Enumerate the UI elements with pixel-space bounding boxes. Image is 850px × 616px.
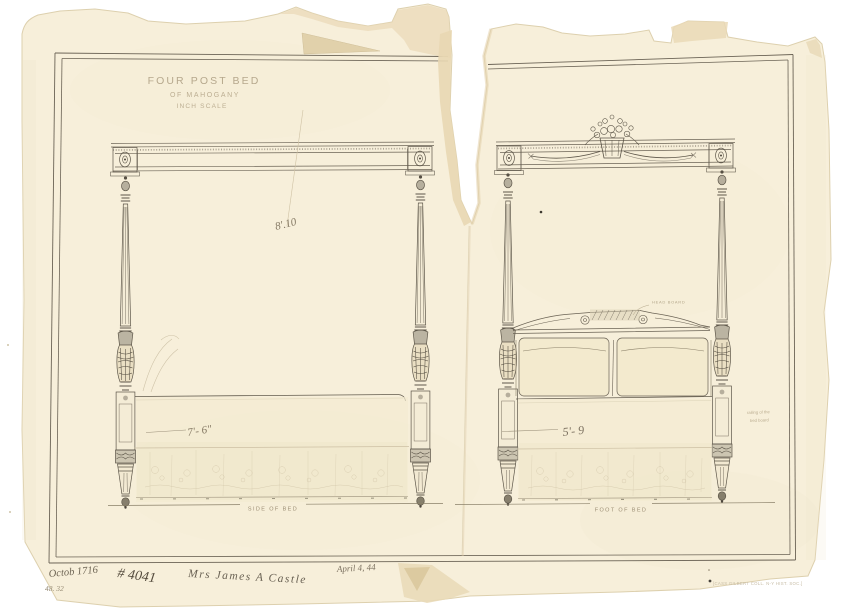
svg-text:FOUR POST BED: FOUR POST BED (148, 75, 261, 87)
svg-text:INCH SCALE: INCH SCALE (176, 103, 227, 110)
svg-text:FOOT OF BED: FOOT OF BED (595, 508, 648, 514)
svg-text:5'- 9: 5'- 9 (562, 423, 585, 439)
svg-text:[CASS GILBERT COLL. N-Y HIST.: [CASS GILBERT COLL. N-Y HIST. SOC.] (713, 581, 803, 586)
svg-text:48. 32: 48. 32 (45, 584, 64, 593)
svg-text:railing of the: railing of the (747, 409, 771, 415)
svg-text:OF MAHOGANY: OF MAHOGANY (170, 92, 240, 99)
svg-text:HEAD BOARD: HEAD BOARD (652, 300, 685, 305)
svg-text:SIDE OF BED: SIDE OF BED (248, 507, 298, 513)
svg-text:bed board: bed board (750, 417, 770, 423)
svg-text:April 4, 44: April 4, 44 (336, 562, 377, 574)
